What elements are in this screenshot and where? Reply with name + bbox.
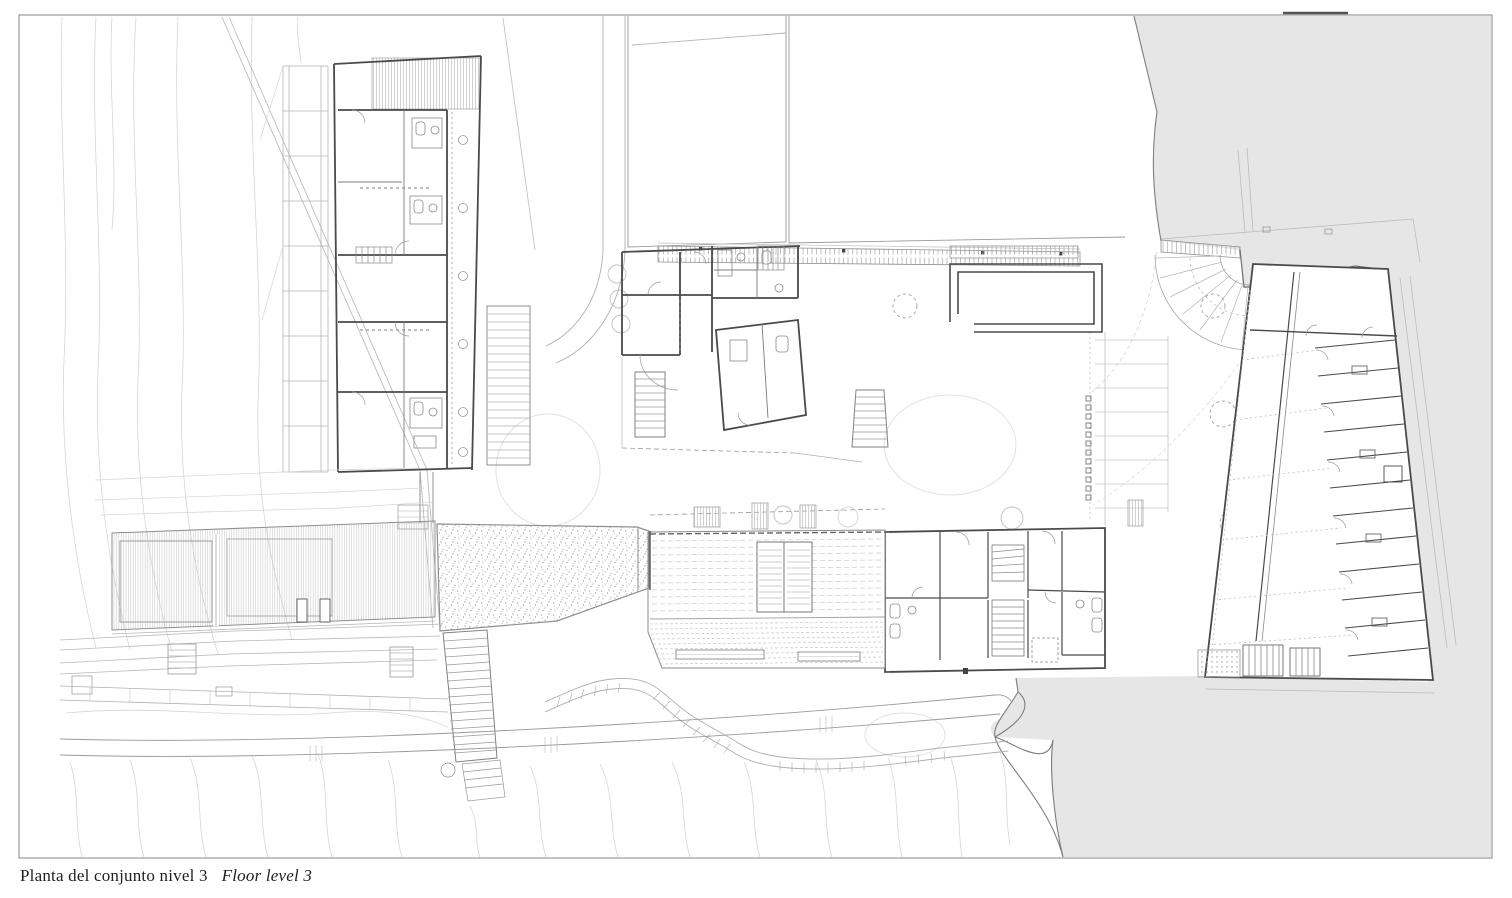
west-rooms-doors [648, 252, 750, 425]
southwest-stair [635, 372, 665, 437]
terraces-southwest [60, 624, 443, 696]
west-apartment-building [334, 56, 481, 472]
gravel-terrace [437, 524, 650, 631]
planter-pads [694, 500, 1143, 529]
deck-stair [757, 542, 812, 612]
door-arcs [352, 110, 409, 405]
entry-mat [1198, 650, 1240, 677]
roadside-trees [608, 265, 630, 333]
caption: Planta del conjunto nivel 3Floor level 3 [20, 866, 312, 886]
caption-english: Floor level 3 [222, 866, 312, 885]
terrain-contours-bottom [66, 710, 1010, 857]
sheet: Planta del conjunto nivel 3Floor level 3 [0, 0, 1512, 898]
skylight [320, 599, 330, 622]
grand-stair-southwest [441, 630, 505, 801]
colonnade [452, 112, 468, 466]
bath-fixtures [410, 118, 442, 448]
roof-deck-hatch [372, 58, 480, 109]
outdoor-stair-east [487, 306, 530, 465]
courtyard-edges [622, 332, 1105, 525]
west-rooms-fixtures [718, 250, 788, 361]
wood-deck [648, 530, 885, 668]
u-building-walkway [950, 246, 1078, 258]
courtyard-stair [852, 390, 888, 447]
courtyard-trees [774, 294, 1246, 536]
path-steps [557, 683, 945, 773]
roof-hatched-building [112, 521, 435, 634]
upper-parcel-outlines [503, 16, 1125, 363]
upper-road-band [60, 686, 448, 712]
plan-drawing-svg [0, 0, 1512, 898]
quarter-turn-ramp [1092, 252, 1250, 505]
south-building [885, 528, 1105, 674]
inner-u-building [950, 264, 1102, 332]
winding-steps-path [545, 678, 1008, 773]
courtyard-pergola-beams [1095, 336, 1168, 512]
caption-spanish: Planta del conjunto nivel 3 [20, 866, 208, 885]
skylight [297, 599, 307, 622]
